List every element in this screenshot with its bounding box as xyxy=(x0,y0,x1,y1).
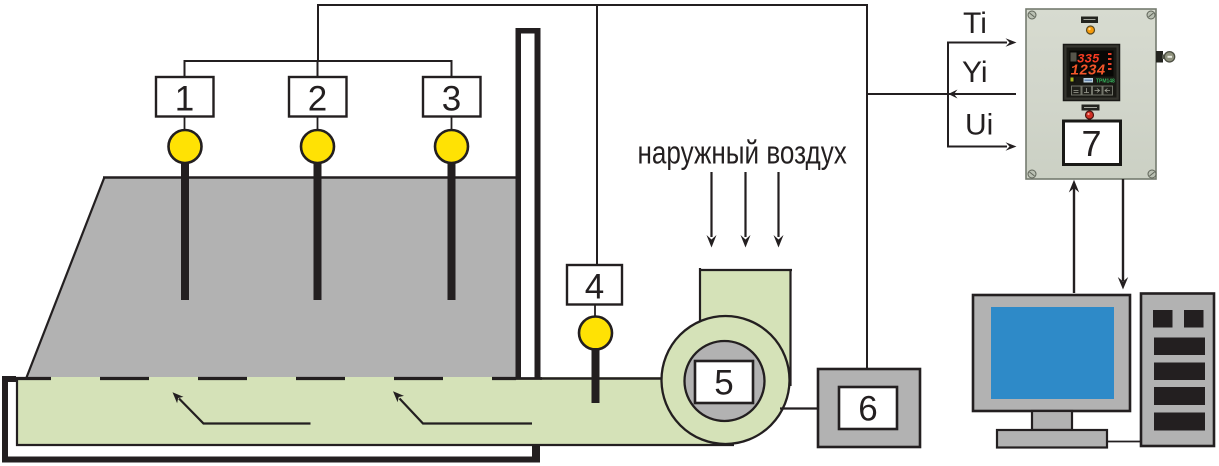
svg-text:1: 1 xyxy=(175,80,194,119)
svg-text:2: 2 xyxy=(308,80,327,119)
svg-text:Ti: Ti xyxy=(963,7,987,40)
svg-text:1234: 1234 xyxy=(1071,64,1106,80)
svg-text:Ui: Ui xyxy=(965,109,993,142)
svg-text:ТРМ148: ТРМ148 xyxy=(1096,79,1115,85)
svg-text:Yi: Yi xyxy=(962,56,988,89)
svg-text:6: 6 xyxy=(858,390,877,429)
svg-text:4: 4 xyxy=(585,268,604,307)
svg-text:наружный воздух: наружный воздух xyxy=(638,136,848,171)
svg-text:5: 5 xyxy=(714,364,733,403)
svg-text:7: 7 xyxy=(1081,123,1101,164)
svg-text:3: 3 xyxy=(442,80,461,119)
